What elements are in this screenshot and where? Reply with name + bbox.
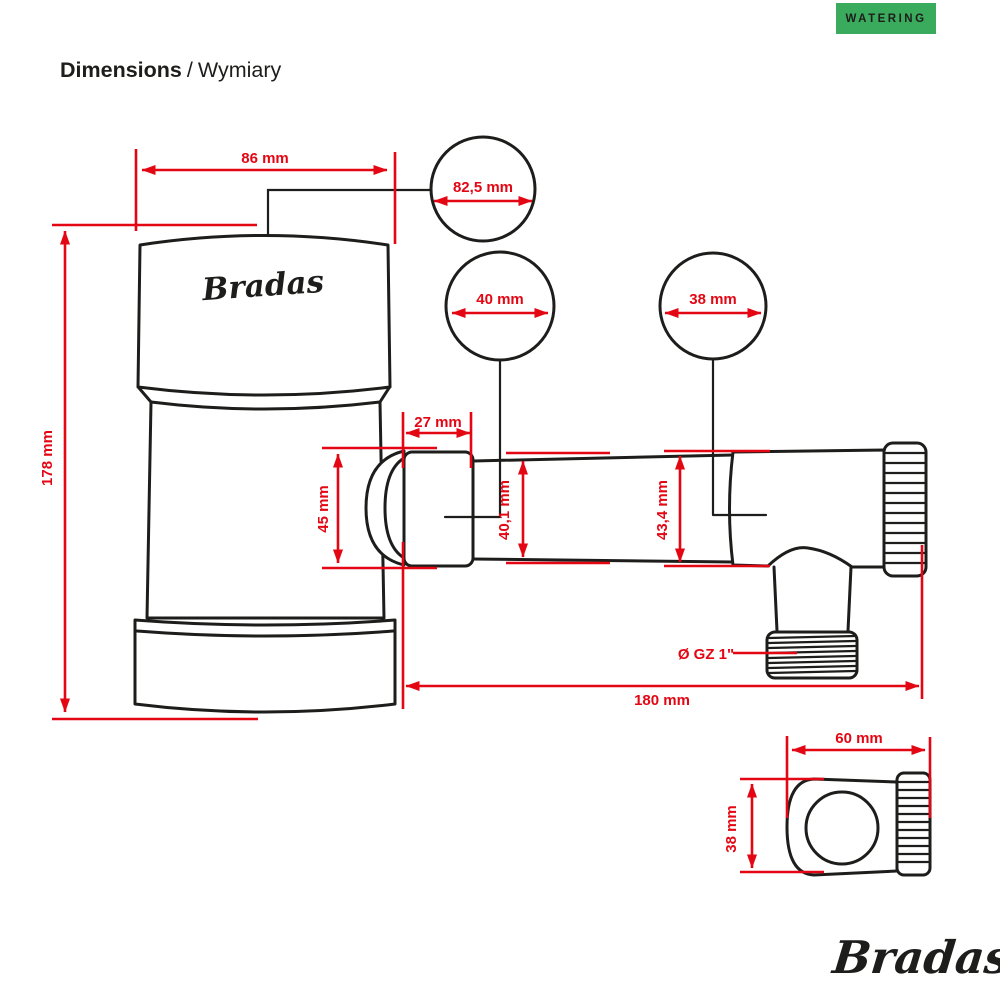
brand-logo-text: Bradas — [831, 935, 1000, 980]
label-right-connector-diameter: 38 mm — [689, 291, 737, 308]
label-total-length: 180 mm — [634, 692, 690, 709]
coupler — [404, 452, 473, 566]
catalog-dimensions-page: WATERING Dimensions/Wymiary Bradas — [0, 0, 1000, 1000]
outlet-tube — [774, 567, 851, 631]
ext-total-length — [403, 542, 922, 709]
callout-circles — [431, 137, 766, 360]
label-total-height: 178 mm — [39, 430, 56, 486]
label-pipe-inner-left: 40,1 mm — [496, 480, 513, 540]
label-pipe-inner-right: 43,4 mm — [654, 480, 671, 540]
label-lid-diameter: 82,5 mm — [453, 179, 513, 196]
label-left-connector-diameter: 40 mm — [476, 291, 524, 308]
leader-lid — [268, 190, 431, 234]
label-side-height: 38 mm — [723, 805, 740, 853]
side-view-bore — [806, 792, 878, 864]
label-connector-length: 27 mm — [414, 414, 462, 431]
label-outlet-thread: Ø GZ 1" — [678, 646, 734, 663]
side-view-drawing — [787, 773, 930, 875]
t-body — [730, 450, 886, 567]
filter-body-drawing: Bradas — [135, 236, 395, 713]
filter-lid — [138, 236, 390, 396]
label-side-length: 60 mm — [835, 730, 883, 747]
ext-pipe-inner-left — [506, 453, 610, 563]
side-view-cap-nut — [897, 773, 930, 875]
filter-mid-body — [147, 402, 384, 618]
pipe-assembly-drawing — [366, 443, 926, 678]
label-top-width: 86 mm — [241, 150, 289, 167]
label-connector-height: 45 mm — [315, 485, 332, 533]
dimension-drawing: Bradas — [0, 0, 1000, 1000]
brand-logo: Bradas ® — [833, 918, 998, 980]
